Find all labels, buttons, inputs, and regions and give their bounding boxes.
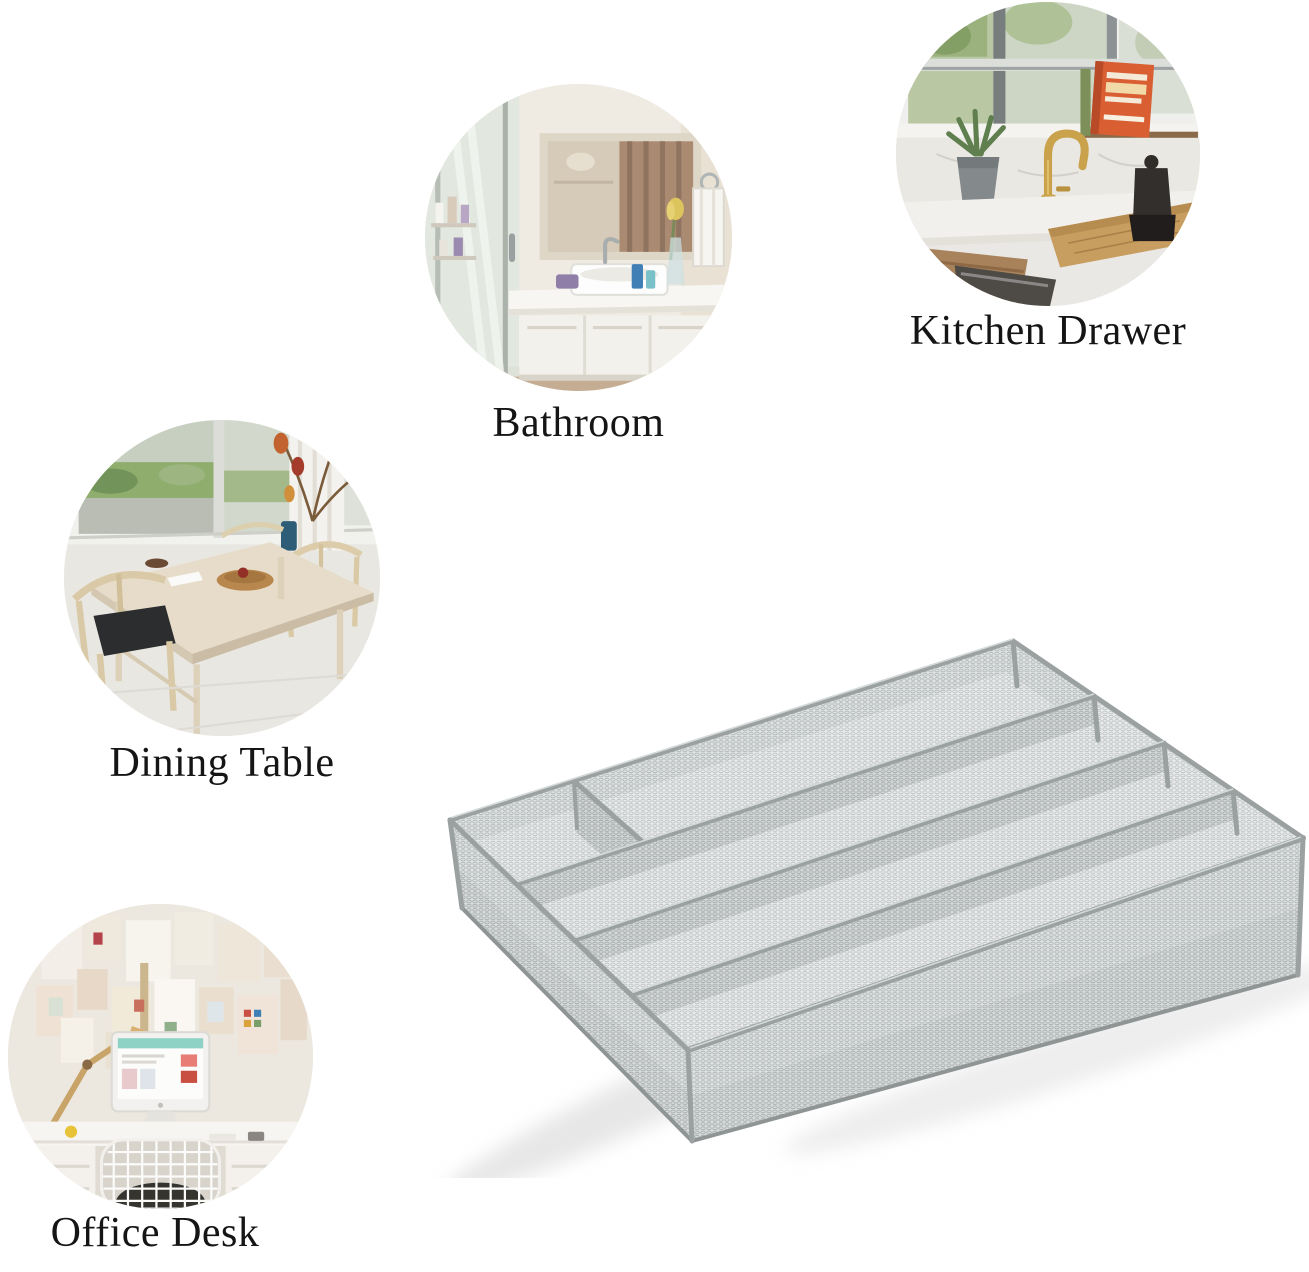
product-image [430,618,1309,1178]
kitchen-photo [896,2,1200,306]
kitchen-window [896,2,1200,138]
curtain [289,420,344,551]
office-scene [8,904,313,1209]
vanity-cabinet [519,315,715,380]
dining-table-label: Dining Table [60,738,384,788]
shower-glass [425,84,519,377]
bathroom-scene [425,84,732,391]
dining-table-photo [64,420,380,736]
towel [693,174,724,266]
office-desk-photo [8,904,313,1209]
blue-vase [281,521,297,550]
bathroom-label: Bathroom [425,398,732,448]
imac [112,1032,210,1124]
dining-scene [64,420,380,736]
wire-chair [102,1140,220,1209]
office-desk-label: Office Desk [0,1208,310,1258]
mesh-cutlery-tray [430,618,1309,1178]
product-collage: Kitchen Drawer [0,0,1309,1272]
kitchen-scene [896,2,1200,306]
kitchen-drawer-label: Kitchen Drawer [858,306,1238,356]
bathroom-photo [425,84,732,391]
